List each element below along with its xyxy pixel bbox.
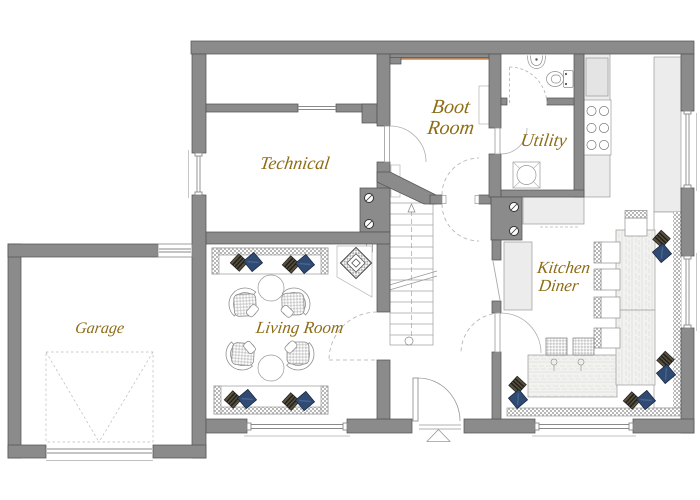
svg-text:Room: Room	[425, 117, 476, 139]
svg-text:Technical: Technical	[259, 153, 331, 173]
svg-text:Boot: Boot	[430, 96, 471, 118]
svg-text:Living Room: Living Room	[254, 318, 345, 337]
svg-text:Garage: Garage	[74, 320, 125, 337]
svg-text:Utility: Utility	[519, 130, 569, 150]
svg-text:Kitchen: Kitchen	[535, 258, 592, 277]
svg-text:Diner: Diner	[537, 276, 581, 295]
